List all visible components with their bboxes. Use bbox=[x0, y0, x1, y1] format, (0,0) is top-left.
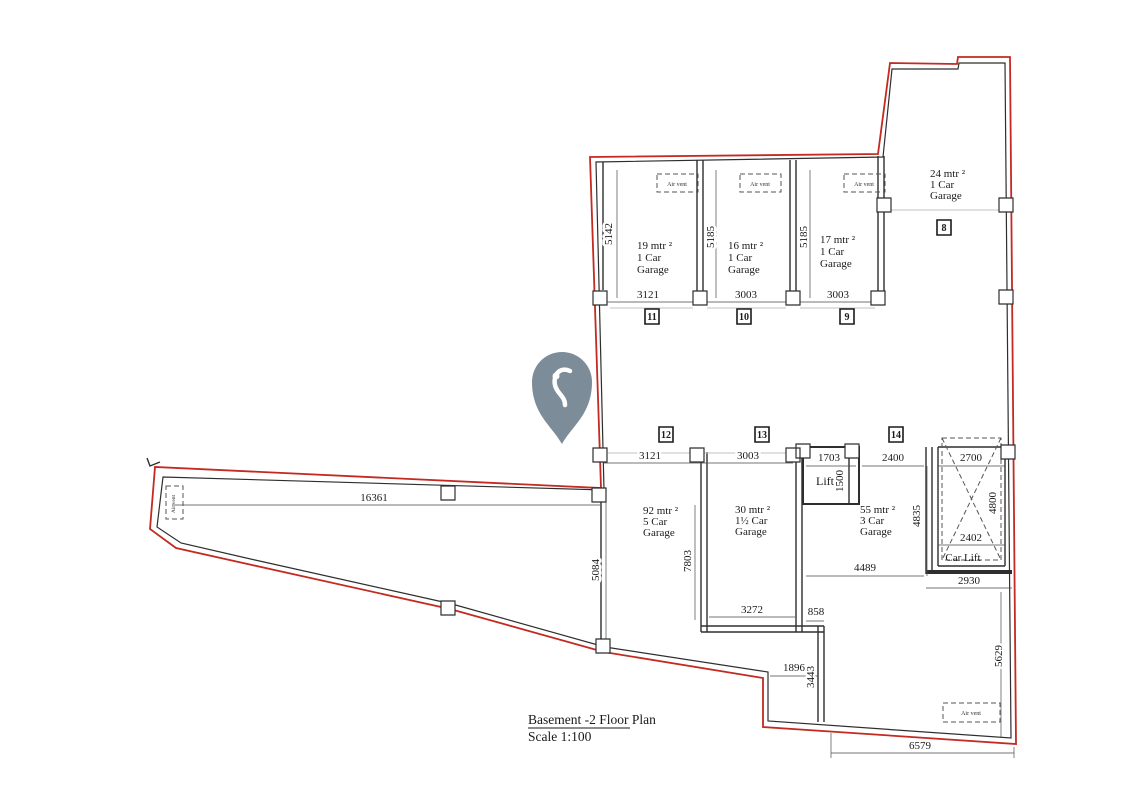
dim-carlift-top: 2700 bbox=[960, 452, 983, 464]
dim-mid-3003: 3003 bbox=[737, 450, 760, 462]
dim-garage16-depth: 5185 bbox=[705, 226, 717, 249]
garage19-cars: 1 Car bbox=[637, 252, 661, 264]
room-label-garage16: 16 mtr ² 1 Car Garage bbox=[728, 240, 764, 276]
car-lift-label: Car Lift bbox=[945, 552, 980, 564]
bay-number-10: 10 bbox=[739, 312, 749, 323]
room-label-garage92: 92 mtr ² 5 Car Garage bbox=[643, 505, 679, 539]
air-vent-boxes bbox=[166, 174, 1000, 722]
air-vent-label-1: Air vent bbox=[667, 182, 687, 188]
garage19-type: Garage bbox=[637, 264, 669, 276]
garage19-area: 19 mtr ² bbox=[637, 240, 673, 252]
dim-lift-depth: 1500 bbox=[834, 470, 846, 493]
dim-carlift-out: 2930 bbox=[958, 575, 981, 587]
dim-garage30-width: 3272 bbox=[741, 604, 763, 616]
garage30-type: Garage bbox=[735, 526, 767, 538]
garage16-cars: 1 Car bbox=[728, 252, 752, 264]
dim-garage55-depth: 4835 bbox=[911, 505, 923, 528]
dim-step-858: 858 bbox=[808, 606, 825, 618]
room-label-garage17: 17 mtr ² 1 Car Garage bbox=[820, 234, 856, 270]
dim-notch-depth: 3443 bbox=[805, 666, 817, 689]
air-vent-label-4: Air vent bbox=[961, 711, 981, 717]
plan-title: Basement -2 Floor Plan bbox=[528, 712, 656, 727]
bay-number-9: 9 bbox=[845, 312, 850, 323]
dim-notch-width: 1896 bbox=[783, 662, 806, 674]
garage17-type: Garage bbox=[820, 258, 852, 270]
bay-number-13: 13 bbox=[757, 430, 767, 441]
interior-walls bbox=[147, 156, 1005, 722]
title-block: Basement -2 Floor Plan Scale 1:100 bbox=[528, 712, 656, 744]
garage17-area: 17 mtr ² bbox=[820, 234, 856, 246]
room-label-garage24: 24 mtr ² 1 Car Garage bbox=[930, 168, 966, 202]
bay-number-14: 14 bbox=[891, 430, 901, 441]
dim-carlift-inner: 2402 bbox=[960, 532, 982, 544]
air-vent-label-5: Air vent bbox=[171, 494, 177, 513]
dim-mid-2400: 2400 bbox=[882, 452, 905, 464]
garage55-type: Garage bbox=[860, 526, 892, 538]
dim-garage16-width: 3003 bbox=[735, 289, 758, 301]
garage92-type: Garage bbox=[643, 527, 675, 539]
lift-label: Lift bbox=[816, 474, 835, 488]
air-vent-label-3: Air vent bbox=[854, 182, 874, 188]
dim-mid-3121: 3121 bbox=[639, 450, 661, 462]
room-label-garage55: 55 mtr ² 3 Car Garage bbox=[860, 504, 896, 538]
garage16-area: 16 mtr ² bbox=[728, 240, 764, 252]
plan-scale: Scale 1:100 bbox=[528, 729, 592, 744]
bay-number-8: 8 bbox=[942, 223, 947, 234]
dim-right-height: 5629 bbox=[993, 645, 1005, 668]
room-label-garage30: 30 mtr ² 1½ Car Garage bbox=[735, 504, 771, 538]
dim-garage19-depth: 5142 bbox=[603, 223, 615, 245]
garage24-type: Garage bbox=[930, 190, 962, 202]
dim-garage17-depth: 5185 bbox=[798, 226, 810, 249]
floor-plan-canvas: 11 10 9 8 12 13 14 3121 3003 3003 3121 3… bbox=[0, 0, 1131, 800]
dim-wing-length: 16361 bbox=[360, 492, 388, 504]
garage17-cars: 1 Car bbox=[820, 246, 844, 258]
garage16-type: Garage bbox=[728, 264, 760, 276]
dim-lift-width: 1703 bbox=[818, 452, 841, 464]
air-vent-label-2: Air vent bbox=[750, 182, 770, 188]
dim-garage55-width: 4489 bbox=[854, 562, 877, 574]
dim-garage17-width: 3003 bbox=[827, 289, 850, 301]
bay-number-12: 12 bbox=[661, 430, 671, 441]
bay-number-boxes bbox=[645, 220, 951, 442]
room-label-garage19: 19 mtr ² 1 Car Garage bbox=[637, 240, 673, 276]
bay-number-11: 11 bbox=[647, 312, 656, 323]
dim-garage19-width: 3121 bbox=[637, 289, 659, 301]
dim-garage92-depth: 5084 bbox=[590, 559, 602, 582]
dim-garage30-depth: 7803 bbox=[682, 550, 694, 573]
dim-bottom-width: 6579 bbox=[909, 740, 932, 752]
floor-plan-sheet: 11 10 9 8 12 13 14 3121 3003 3003 3121 3… bbox=[0, 0, 1131, 800]
location-pin-icon[interactable] bbox=[532, 352, 592, 444]
dim-carlift-depth: 4800 bbox=[987, 492, 999, 515]
